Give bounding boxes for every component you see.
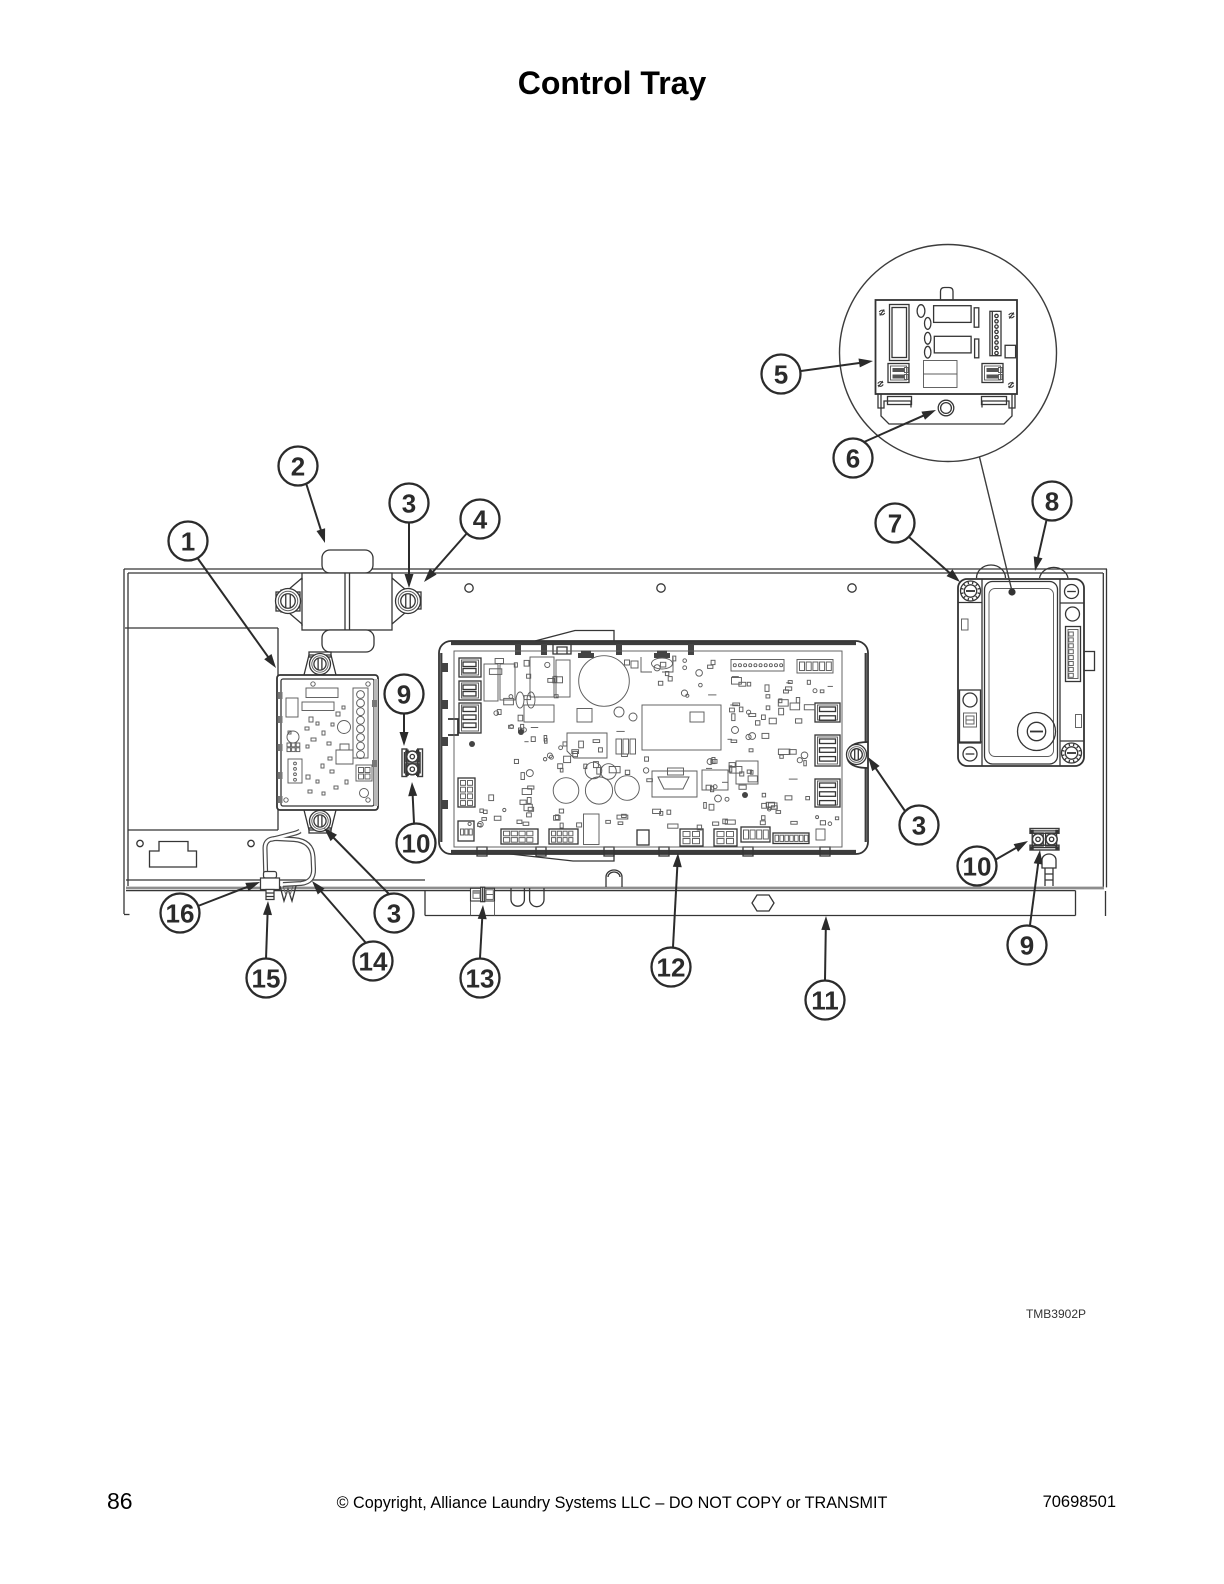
svg-text:11: 11 [811,986,839,1016]
svg-text:10: 10 [402,829,431,859]
svg-text:13: 13 [466,964,495,994]
svg-text:6: 6 [846,444,860,474]
svg-text:16: 16 [166,899,195,929]
svg-text:2: 2 [291,452,305,482]
svg-text:5: 5 [774,360,788,390]
svg-text:9: 9 [1020,931,1034,961]
svg-text:8: 8 [1045,487,1059,517]
svg-text:4: 4 [473,505,488,535]
svg-text:1: 1 [181,527,195,557]
svg-text:3: 3 [402,489,416,519]
svg-text:15: 15 [252,964,281,994]
svg-text:7: 7 [888,509,902,539]
svg-text:12: 12 [657,953,686,983]
svg-text:3: 3 [912,811,926,841]
svg-text:9: 9 [397,680,411,710]
svg-text:14: 14 [359,947,388,977]
svg-text:3: 3 [387,899,401,929]
svg-text:10: 10 [963,852,992,882]
